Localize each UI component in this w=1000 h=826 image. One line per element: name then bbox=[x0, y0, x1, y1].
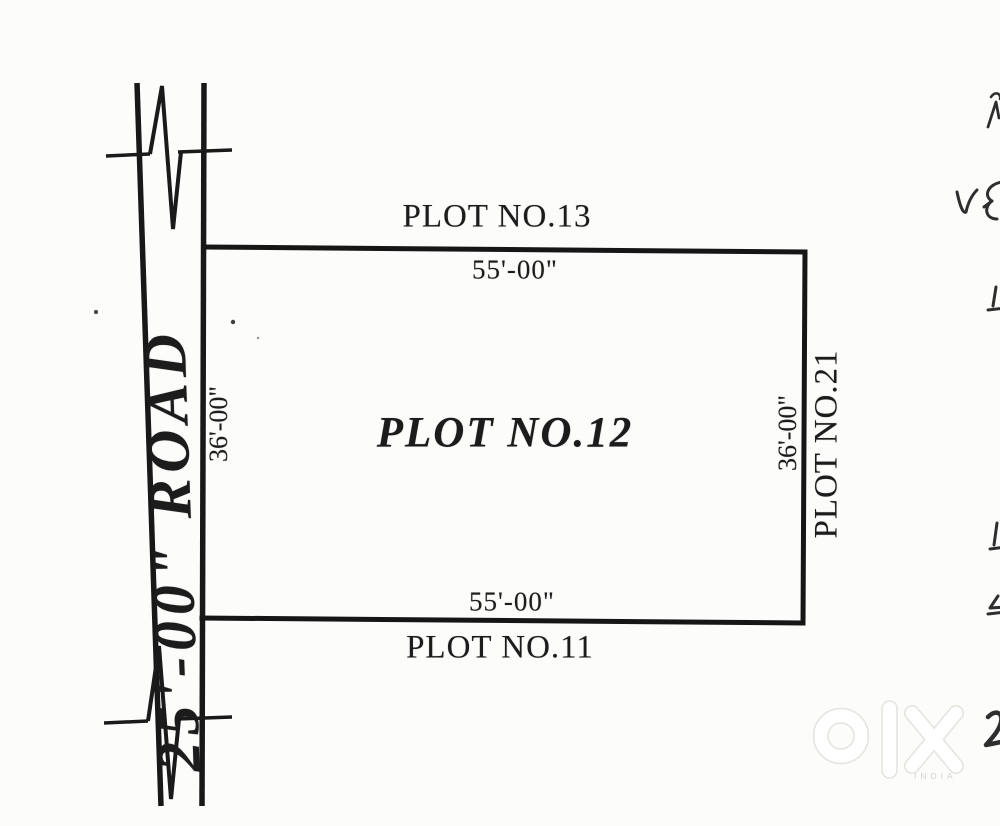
scan-speck bbox=[231, 320, 235, 324]
handwritten-stroke-mark bbox=[988, 102, 999, 127]
south-boundary-dimension: 55'-00" bbox=[469, 589, 555, 616]
plot-north-boundary bbox=[204, 247, 805, 252]
handwritten-underlined-digit bbox=[990, 523, 1000, 549]
east-plot-label: PLOT NO.21 bbox=[811, 349, 844, 538]
plot-east-boundary bbox=[803, 252, 805, 623]
olx-watermark: INDIA bbox=[800, 690, 985, 790]
scan-speck bbox=[94, 310, 98, 314]
break-zigzag-icon bbox=[150, 86, 181, 229]
watermark-country-label: INDIA bbox=[914, 771, 957, 781]
west-boundary-dimension: 36'-00" bbox=[206, 386, 232, 462]
handwritten-ampersand-mark bbox=[984, 182, 1000, 219]
road-break-symbol-top bbox=[106, 86, 232, 229]
handwritten-v-mark bbox=[957, 190, 977, 212]
scanned-site-plan: 25'-00" ROAD PLOT NO.13 55'-00" PLOT NO.… bbox=[0, 0, 1000, 826]
break-tick-right bbox=[178, 150, 232, 152]
scan-speck bbox=[257, 337, 259, 339]
break-tick-left bbox=[106, 154, 150, 156]
handwritten-underlined-digit bbox=[988, 596, 1000, 614]
break-tick-left bbox=[104, 721, 148, 723]
olx-logo-x-icon bbox=[912, 713, 956, 766]
center-plot-label: PLOT NO.12 bbox=[377, 412, 633, 455]
handwritten-tilde-mark bbox=[991, 93, 1000, 99]
olx-logo-bar-icon bbox=[882, 701, 897, 778]
handwritten-edge-marks bbox=[957, 93, 1000, 745]
olx-logo-o-icon bbox=[814, 709, 869, 764]
handwritten-underlined-digit bbox=[988, 287, 1000, 310]
handwritten-digit-2 bbox=[986, 713, 1000, 745]
north-plot-label: PLOT NO.13 bbox=[402, 201, 591, 234]
east-boundary-dimension: 36'-00" bbox=[775, 395, 801, 471]
plot-south-boundary bbox=[202, 618, 803, 623]
north-boundary-dimension: 55'-00" bbox=[472, 257, 558, 284]
road-label: 25'-00" ROAD bbox=[134, 327, 209, 772]
south-plot-label: PLOT NO.11 bbox=[406, 632, 594, 665]
